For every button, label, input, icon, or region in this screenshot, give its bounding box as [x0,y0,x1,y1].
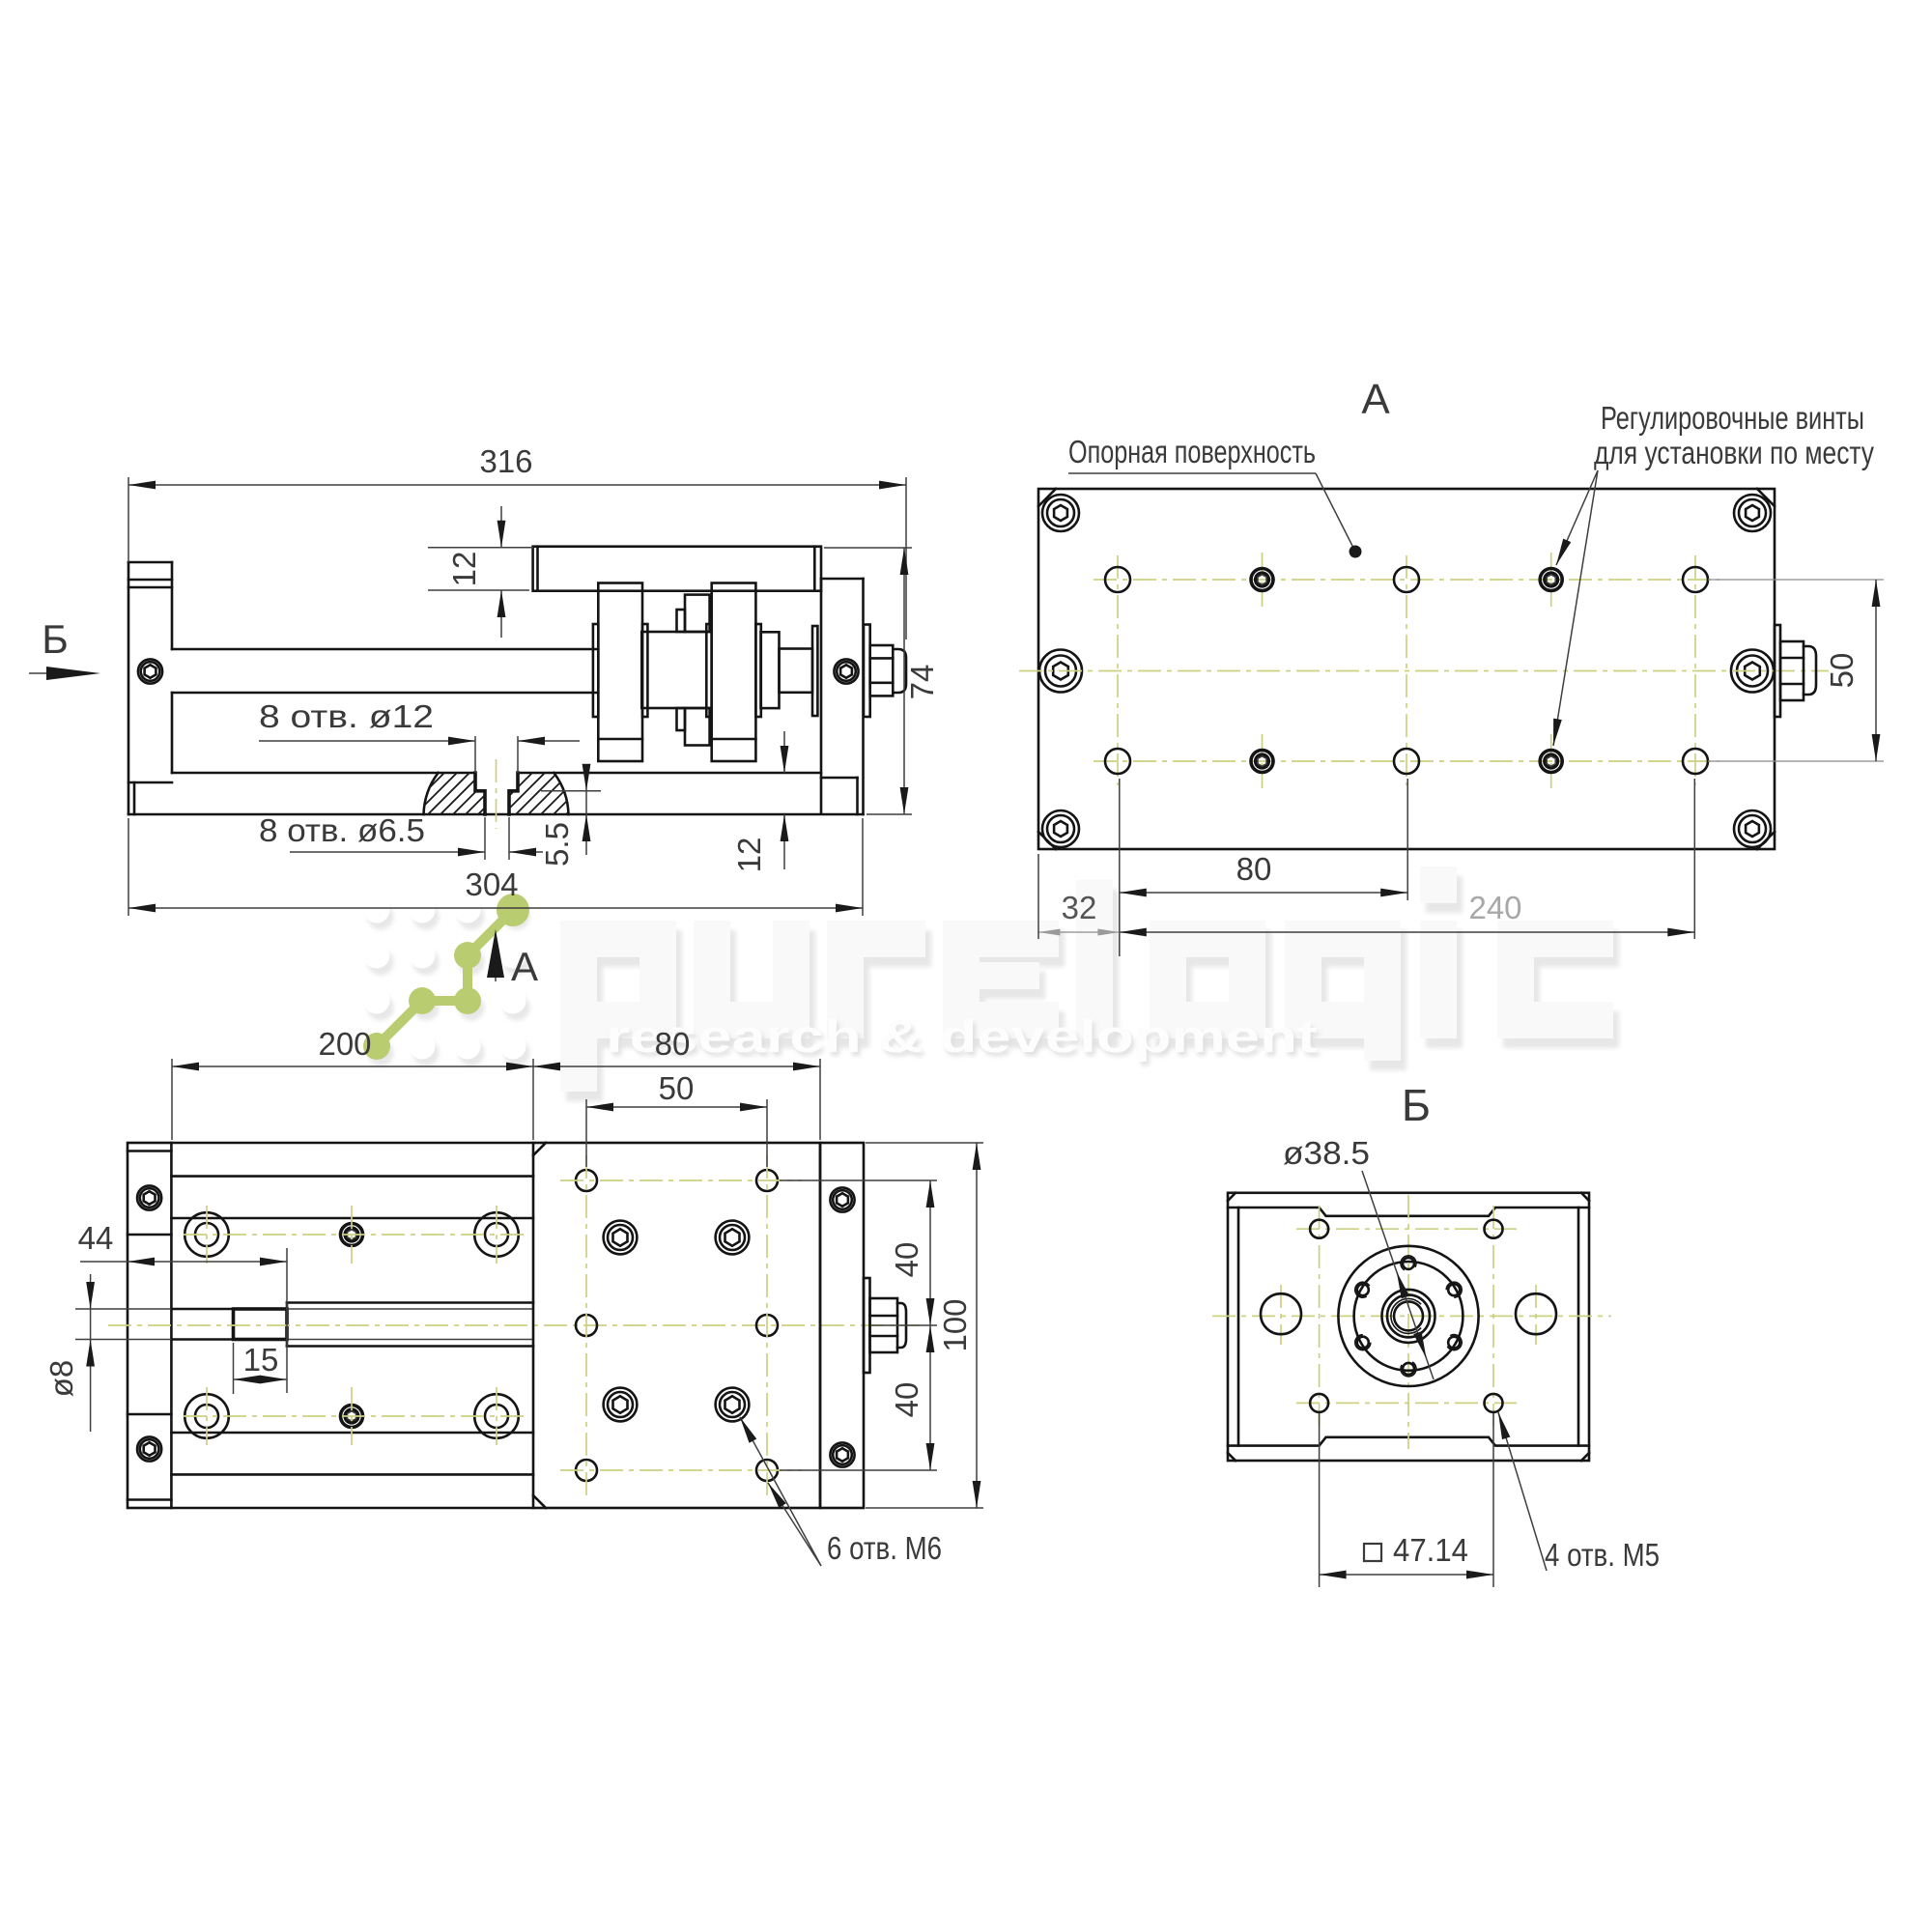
svg-text:ø8: ø8 [43,1360,79,1398]
svg-text:А: А [511,944,538,989]
svg-text:47.14: 47.14 [1393,1532,1468,1568]
svg-text:Б: Б [1402,1080,1431,1130]
svg-text:12: 12 [731,838,767,873]
svg-text:12: 12 [446,552,482,587]
svg-text:ø38.5: ø38.5 [1283,1135,1370,1171]
svg-text:5.5: 5.5 [539,822,575,867]
svg-text:research & development: research & development [606,1010,1318,1062]
svg-text:для установки по месту: для установки по месту [1594,435,1874,470]
svg-text:8 отв. ø6.5: 8 отв. ø6.5 [259,812,425,848]
svg-text:Опорная поверхность: Опорная поверхность [1068,434,1316,469]
svg-text:40: 40 [889,1242,924,1278]
svg-text:15: 15 [243,1342,279,1378]
svg-text:74: 74 [904,665,940,700]
svg-text:100: 100 [937,1298,973,1351]
svg-text:8 отв. ø12: 8 отв. ø12 [259,698,434,734]
svg-text:80: 80 [655,1026,691,1062]
svg-text:Регулировочные винты: Регулировочные винты [1601,400,1864,436]
svg-text:А: А [1361,376,1390,423]
svg-text:40: 40 [889,1382,924,1418]
svg-text:4 отв. М5: 4 отв. М5 [1545,1537,1660,1573]
svg-text:6 отв. М6: 6 отв. М6 [827,1530,942,1566]
svg-text:50: 50 [1824,653,1860,689]
svg-text:Б: Б [42,616,69,662]
svg-text:80: 80 [1236,851,1272,887]
svg-text:200: 200 [318,1026,371,1062]
svg-text:240: 240 [1468,890,1521,925]
svg-text:50: 50 [659,1070,695,1106]
svg-text:32: 32 [1062,890,1097,925]
svg-text:316: 316 [479,443,532,479]
svg-text:44: 44 [78,1220,114,1256]
svg-text:304: 304 [465,867,518,902]
